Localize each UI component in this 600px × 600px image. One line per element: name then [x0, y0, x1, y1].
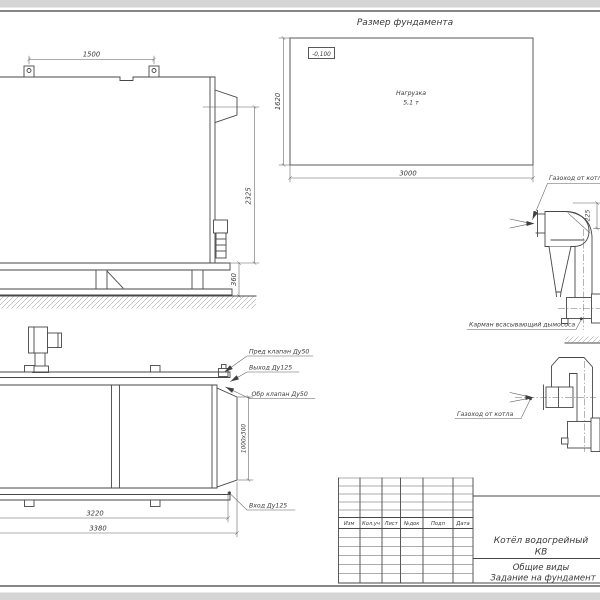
pump-block	[214, 220, 228, 233]
product-name-line2: КВ	[535, 548, 548, 558]
dim-overall-length: 3380	[0, 482, 237, 537]
top-tab-left	[25, 366, 35, 373]
base-leg-left	[96, 270, 107, 289]
dim-foundation-depth: 1620	[274, 38, 290, 165]
top-tab-right	[151, 366, 161, 373]
leader-dot	[580, 317, 583, 320]
drawing-canvas: 1500 2325 360 Размер фундамента -0,100 Н…	[0, 0, 600, 600]
dim-total-height: 2325	[203, 107, 259, 263]
dim-text-1000x300: 1000x300	[242, 424, 248, 454]
base-skid	[0, 289, 232, 295]
title-block: Изм Кол.уч Лист №док Подп Дата Котёл вод…	[339, 478, 600, 584]
leader-dot	[228, 491, 231, 494]
svg-text:Газоход от котла: Газоход от котла	[457, 411, 513, 418]
svg-text:Газоход от котла: Газоход от котла	[549, 175, 600, 182]
dim-text-3380: 3380	[89, 525, 106, 533]
bottom-tab-left	[25, 500, 35, 507]
lug-hole-right	[152, 69, 156, 73]
dim-flue-outlet: 1000x300	[238, 397, 253, 480]
dim-text-3220: 3220	[86, 510, 103, 518]
dim-text-2325: 2325	[245, 187, 253, 204]
top-margin-band	[0, 0, 600, 8]
wall-flange-hatch-2	[591, 418, 600, 452]
dim-text-3000: 3000	[399, 170, 416, 178]
foundation-title: Размер фундамента	[357, 18, 453, 28]
svg-text:Выход Ду125: Выход Ду125	[249, 365, 292, 372]
col-list: Лист	[384, 521, 399, 527]
dim-foundation-width: 3000	[290, 165, 533, 182]
svg-text:Обр клапан Ду50: Обр клапан Ду50	[252, 390, 308, 398]
lug-hole-left	[27, 69, 31, 73]
dim-lug-spacing: 1500	[29, 51, 154, 65]
load-label: Нагрузка	[396, 90, 426, 97]
pump-body	[216, 233, 226, 258]
flow-arrow-icon	[510, 219, 535, 228]
svg-text:Вход Ду125: Вход Ду125	[249, 503, 287, 510]
boiler-duct-view: Газоход от котла	[455, 337, 600, 453]
smoke-exhauster-view: Газоход от котла	[467, 175, 600, 330]
svg-text:Пред клапан Ду50: Пред клапан Ду50	[249, 349, 309, 356]
base-rail	[0, 263, 230, 270]
safety-valve-fitting	[219, 369, 229, 377]
boiler-top-view: 1000x300 3220 3380 Пред клапан Ду50 Выхо…	[0, 327, 315, 537]
load-value: 5,1 т	[403, 100, 419, 107]
boiler-body-outline	[0, 77, 215, 263]
base-leg-right	[192, 270, 203, 289]
col-podp: Подп	[431, 521, 446, 527]
dim-text-1500: 1500	[83, 51, 100, 59]
col-data: Дата	[455, 521, 469, 527]
dim-text-225: 225	[585, 210, 592, 222]
bottom-margin-band	[0, 593, 600, 600]
boiler-side-view: 1500 2325 360	[0, 51, 259, 309]
ground-hatch	[0, 297, 256, 309]
flue-transition	[217, 388, 237, 487]
elevation-mark: -0,100	[312, 52, 331, 58]
col-ndok: №док	[403, 521, 420, 527]
label-duct-bottom: Газоход от котла	[455, 397, 532, 418]
exhauster-cone	[549, 247, 571, 293]
col-izm: Изм	[344, 521, 355, 527]
fan-foot	[562, 438, 569, 444]
leader-dot	[529, 397, 532, 400]
col-koluch: Кол.уч	[362, 521, 380, 527]
svg-text:Карман всасывающий дымососа: Карман всасывающий дымососа	[469, 322, 575, 329]
bottom-tab-right	[151, 500, 161, 507]
doc-type: Общие виды	[513, 563, 570, 573]
product-name-line1: Котёл водогрейный	[494, 536, 589, 546]
ceiling-hatch	[565, 337, 600, 344]
dim-base-height: 360	[230, 263, 239, 296]
base-brace	[107, 271, 123, 288]
drawing-sheet: 1500 2325 360 Размер фундамента -0,100 Н…	[0, 0, 600, 600]
foundation-plan: Размер фундамента -0,100 Нагрузка 5,1 т …	[274, 18, 533, 182]
top-view-body	[0, 385, 217, 488]
label-inlet: Вход Ду125	[228, 491, 295, 510]
dim-text-360: 360	[230, 273, 238, 286]
label-outlet: Выход Ду125	[231, 365, 300, 382]
sheet-title: Задание на фундамент	[490, 574, 596, 584]
bottom-rail	[0, 495, 230, 501]
flue-outlet	[215, 90, 237, 123]
dim-length: 3220	[0, 492, 228, 522]
dim-text-1620: 1620	[274, 93, 282, 110]
